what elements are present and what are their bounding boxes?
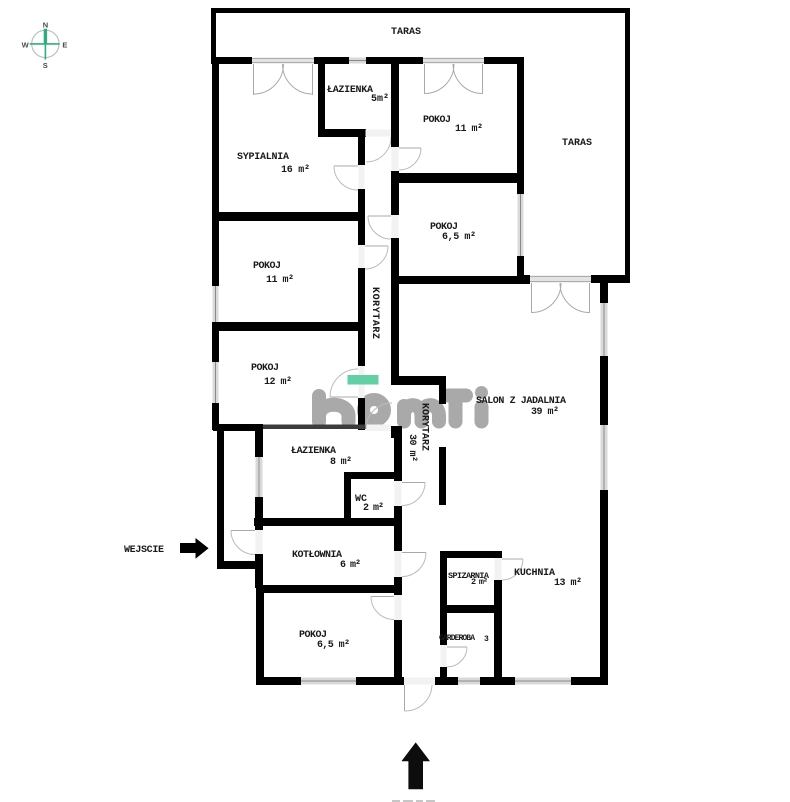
svg-text:2 m²: 2 m² <box>471 577 488 587</box>
svg-text:5m²: 5m² <box>371 94 389 105</box>
svg-text:12 m²: 12 m² <box>264 377 292 388</box>
svg-text:6 m²: 6 m² <box>340 560 361 571</box>
svg-text:KORYTARZ: KORYTARZ <box>369 287 380 339</box>
svg-text:KUCHNIA: KUCHNIA <box>514 568 555 579</box>
svg-text:POKOJ: POKOJ <box>253 261 281 272</box>
svg-text:ŁAZIENKA: ŁAZIENKA <box>291 446 336 457</box>
svg-text:13 m²: 13 m² <box>554 578 582 589</box>
svg-text:2 m²: 2 m² <box>363 503 384 514</box>
svg-text:POKOJ: POKOJ <box>423 115 451 126</box>
svg-text:S: S <box>43 61 48 70</box>
svg-text:GARDEROBA: GARDEROBA <box>439 634 475 643</box>
svg-text:WEJSCIE: WEJSCIE <box>124 545 164 556</box>
svg-text:39 m²: 39 m² <box>531 407 559 418</box>
svg-text:KOTŁOWNIA: KOTŁOWNIA <box>292 550 342 561</box>
svg-text:SYPIALNIA: SYPIALNIA <box>237 152 289 163</box>
svg-text:POKOJ: POKOJ <box>251 363 279 374</box>
svg-text:TARAS: TARAS <box>391 27 421 38</box>
svg-text:KORYTARZ: KORYTARZ <box>419 403 430 451</box>
svg-text:11 m²: 11 m² <box>455 124 483 135</box>
svg-text:E: E <box>62 40 67 49</box>
svg-text:SALON Z JADALNIA: SALON Z JADALNIA <box>476 396 566 407</box>
svg-text:N: N <box>43 21 48 30</box>
svg-text:6,5 m²: 6,5 m² <box>442 232 476 243</box>
svg-text:30 m²: 30 m² <box>406 434 417 462</box>
svg-text:3: 3 <box>484 635 489 644</box>
svg-text:11 m²: 11 m² <box>266 275 294 286</box>
svg-text:6,5 m²: 6,5 m² <box>317 640 350 651</box>
svg-text:ŁAZIENKA: ŁAZIENKA <box>327 85 373 96</box>
svg-text:W: W <box>22 40 30 49</box>
svg-text:TARAS: TARAS <box>562 138 592 149</box>
svg-text:16 m²: 16 m² <box>281 165 310 176</box>
svg-text:8 m²: 8 m² <box>330 457 352 468</box>
